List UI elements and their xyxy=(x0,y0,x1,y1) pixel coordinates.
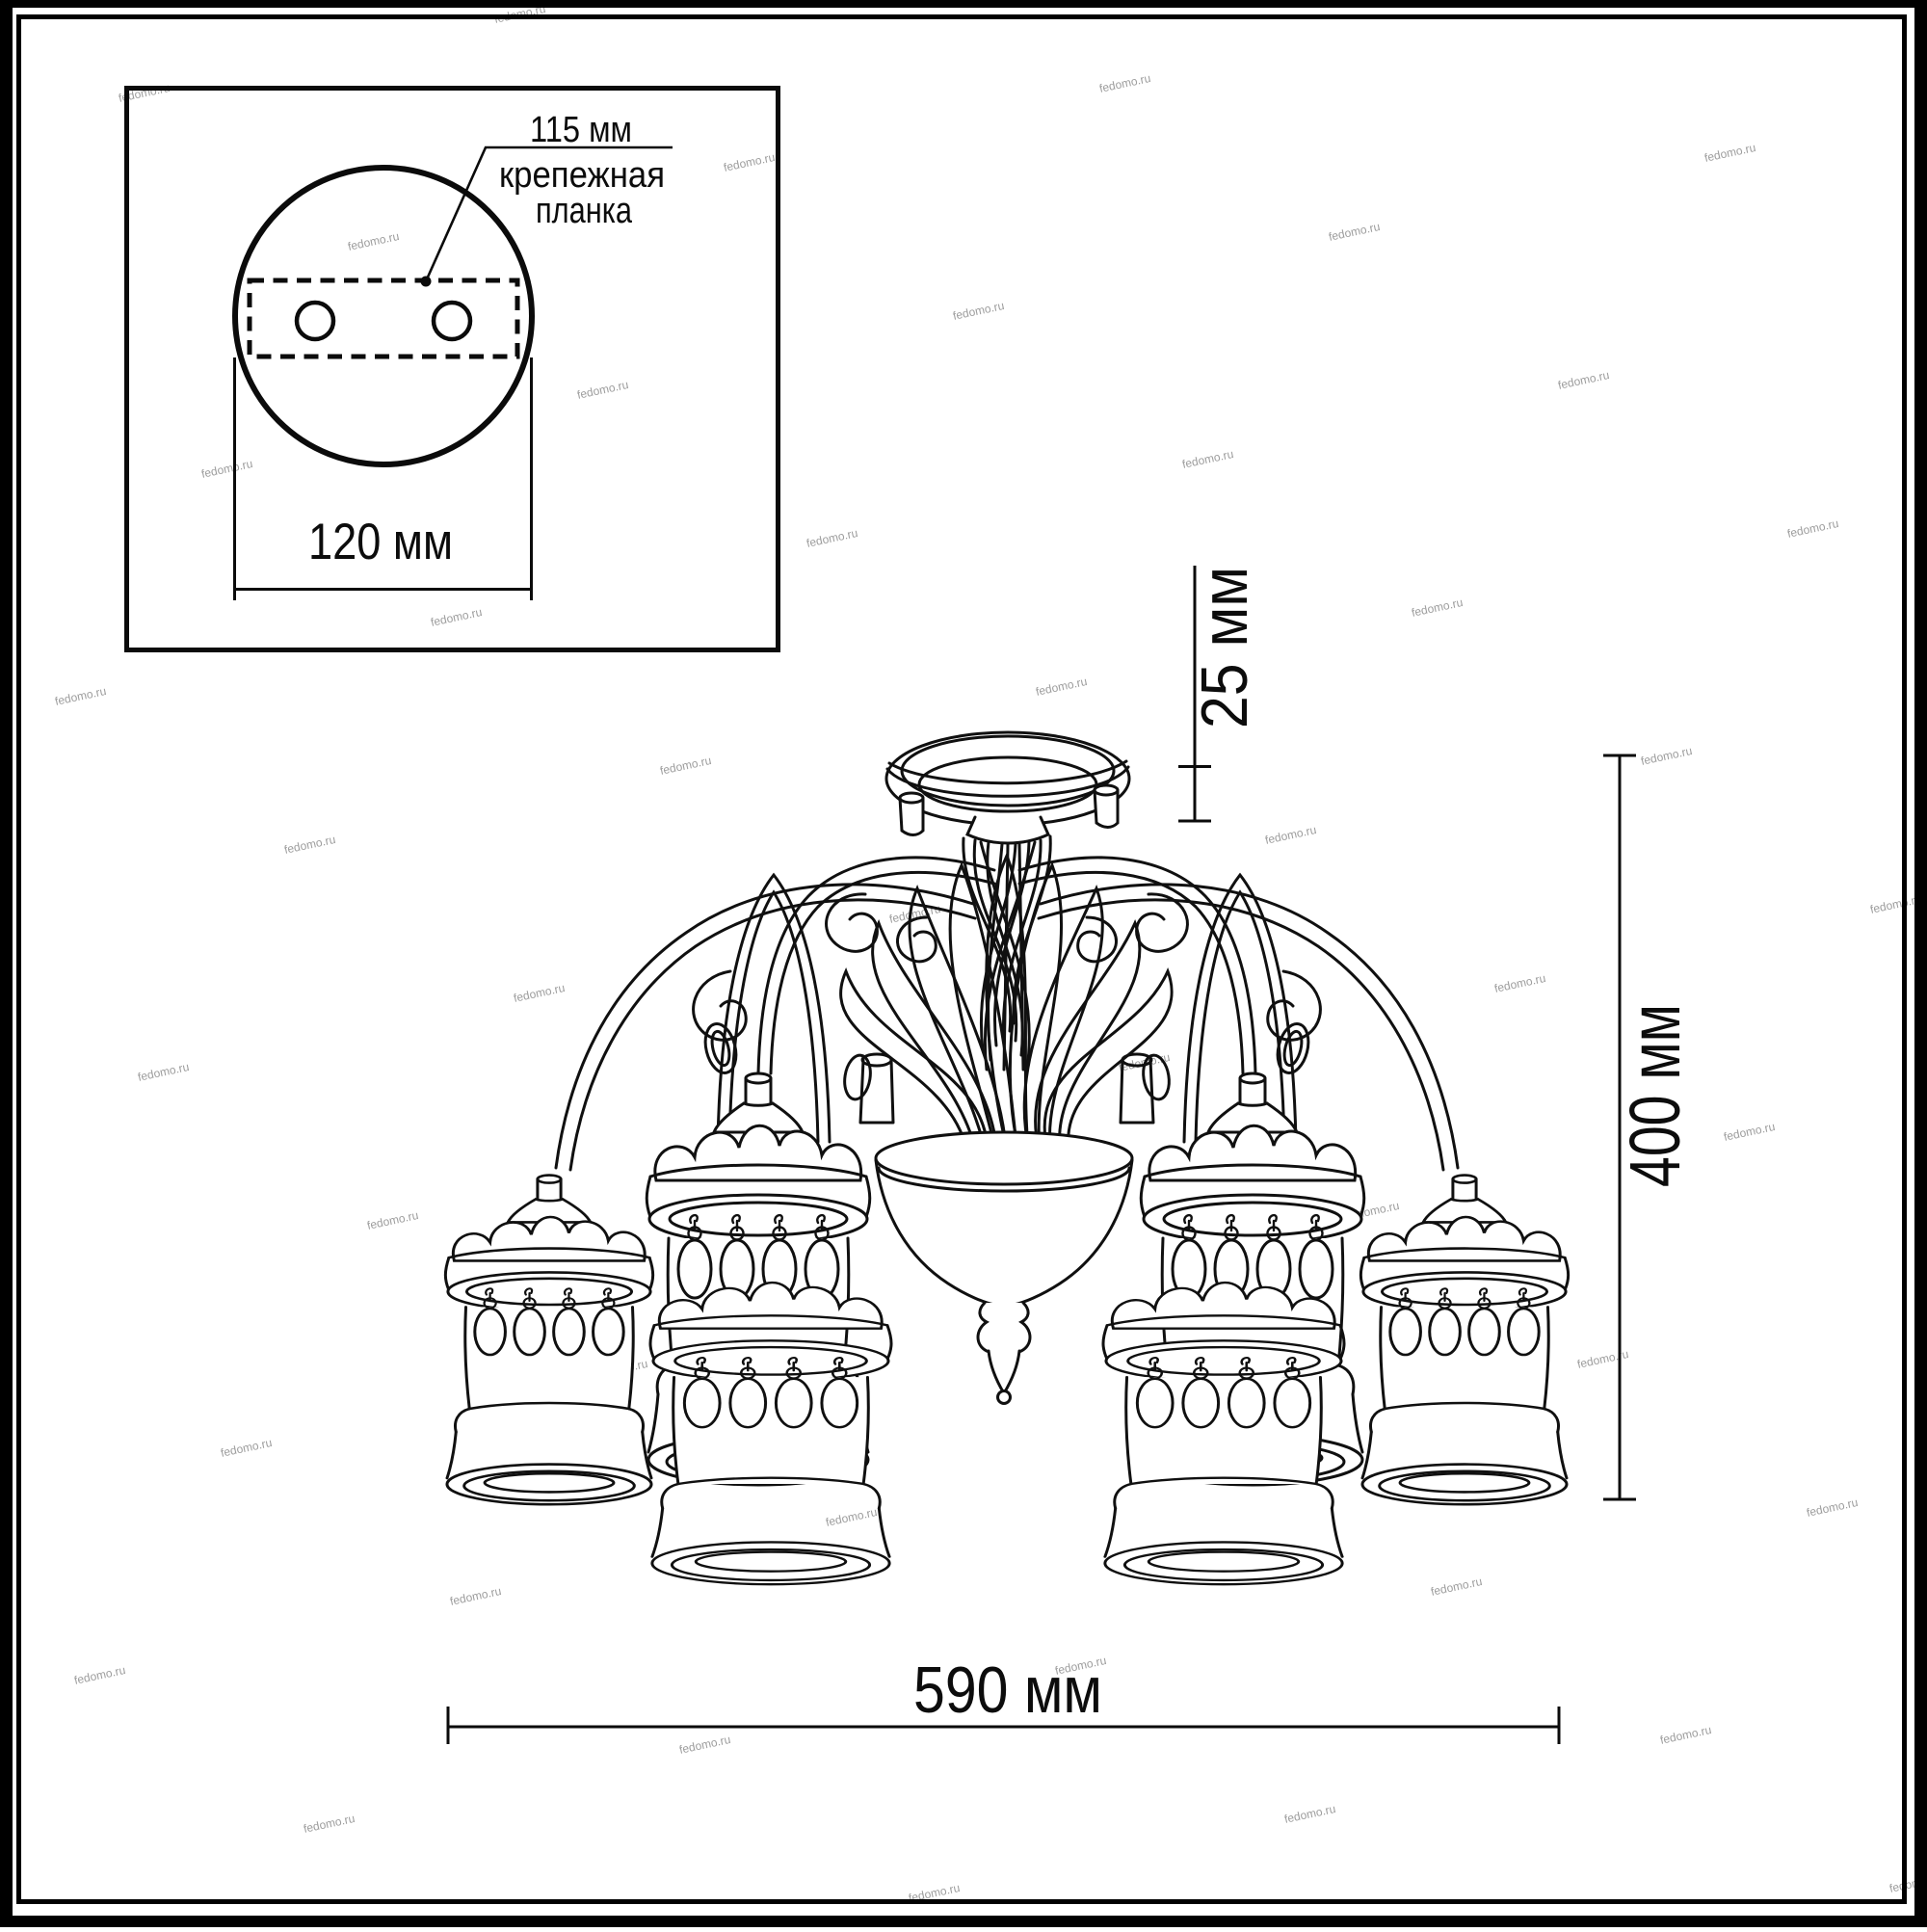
svg-text:590 мм: 590 мм xyxy=(913,1654,1102,1727)
svg-text:крепежная: крепежная xyxy=(499,155,665,196)
svg-text:400 мм: 400 мм xyxy=(1615,1004,1695,1187)
svg-text:115 мм: 115 мм xyxy=(530,110,632,150)
svg-text:25 мм: 25 мм xyxy=(1188,567,1261,728)
svg-text:планка: планка xyxy=(536,191,633,231)
svg-text:120 мм: 120 мм xyxy=(308,514,453,570)
